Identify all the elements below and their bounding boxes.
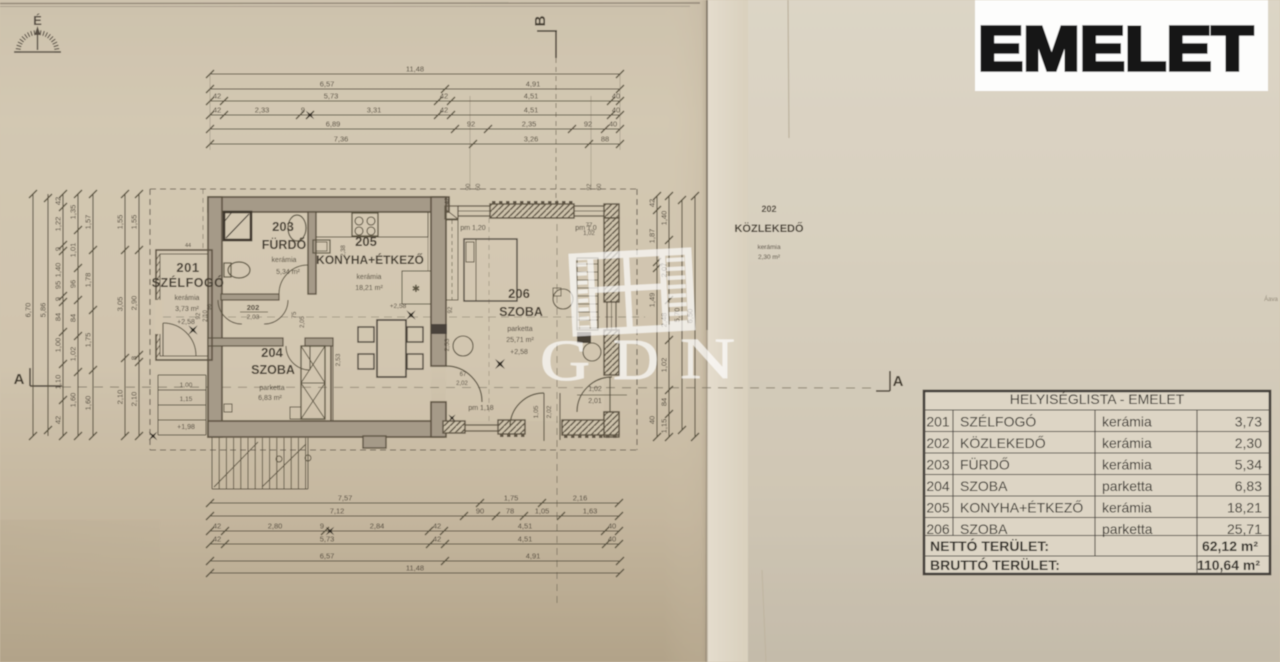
svg-text:2,02: 2,02 <box>546 405 553 418</box>
svg-text:KÖZLEKEDŐ: KÖZLEKEDŐ <box>734 222 804 235</box>
svg-text:202: 202 <box>247 303 260 312</box>
svg-text:KONYHA+ÉTKEZŐ: KONYHA+ÉTKEZŐ <box>960 500 1083 516</box>
svg-text:kerámia: kerámia <box>1102 414 1152 430</box>
svg-text:A: A <box>14 371 25 388</box>
svg-text:62,12 m²: 62,12 m² <box>1202 538 1258 554</box>
svg-text:42: 42 <box>433 535 441 544</box>
svg-text:42: 42 <box>213 106 221 115</box>
svg-text:D: D <box>613 327 659 392</box>
svg-text:205: 205 <box>926 500 950 516</box>
svg-text:N: N <box>680 326 735 391</box>
svg-text:1,55: 1,55 <box>130 215 139 230</box>
svg-text:42: 42 <box>213 535 221 544</box>
svg-text:77: 77 <box>586 223 593 229</box>
svg-text:1,02: 1,02 <box>660 358 669 373</box>
svg-text:parketta: parketta <box>259 385 284 392</box>
svg-text:SZÉLFOGÓ: SZÉLFOGÓ <box>152 275 225 290</box>
svg-text:2,02: 2,02 <box>456 381 468 387</box>
svg-text:84: 84 <box>660 398 669 406</box>
svg-text:HELYISÉGLISTA - EMELET: HELYISÉGLISTA - EMELET <box>1010 391 1185 407</box>
svg-text:2,33: 2,33 <box>255 106 270 115</box>
svg-text:pm 1,20: pm 1,20 <box>460 225 485 232</box>
svg-text:1,00: 1,00 <box>180 382 193 389</box>
svg-text:96: 96 <box>207 304 213 310</box>
svg-text:4,51: 4,51 <box>518 535 533 544</box>
svg-text:3,26: 3,26 <box>524 135 539 144</box>
svg-text:4,91: 4,91 <box>526 552 541 561</box>
svg-text:kerámia: kerámia <box>357 274 382 281</box>
svg-text:SZOBA: SZOBA <box>251 363 295 377</box>
svg-text:6,89: 6,89 <box>326 120 341 129</box>
svg-text:5,34 m²: 5,34 m² <box>276 269 300 276</box>
svg-text:SZOBA: SZOBA <box>960 521 1008 537</box>
svg-text:1,10: 1,10 <box>54 375 63 390</box>
svg-text:kerámia: kerámia <box>1102 435 1152 451</box>
svg-text:2,30 m²: 2,30 m² <box>758 254 781 261</box>
svg-text:1,22: 1,22 <box>54 217 63 232</box>
svg-text:Áava: Áava <box>1264 296 1278 303</box>
svg-text:84: 84 <box>54 313 63 321</box>
svg-text:1,75: 1,75 <box>84 333 93 348</box>
svg-text:18,21: 18,21 <box>1227 500 1262 516</box>
svg-text:201: 201 <box>926 414 950 430</box>
svg-text:25,71: 25,71 <box>1227 521 1262 537</box>
svg-text:25,71 m²: 25,71 m² <box>506 337 534 344</box>
svg-text:6,57: 6,57 <box>320 80 335 89</box>
svg-text:40: 40 <box>648 416 657 424</box>
svg-text:204: 204 <box>926 478 950 494</box>
svg-text:42: 42 <box>54 197 63 205</box>
svg-text:FÜRDŐ: FÜRDŐ <box>262 237 307 252</box>
svg-text:pm 1,18: pm 1,18 <box>468 405 493 412</box>
svg-text:1,02: 1,02 <box>69 347 78 362</box>
svg-text:KONYHA+ÉTKEZŐ: KONYHA+ÉTKEZŐ <box>316 252 424 267</box>
svg-text:96: 96 <box>69 280 78 288</box>
svg-text:7,57: 7,57 <box>338 494 353 503</box>
svg-text:60: 60 <box>476 183 482 190</box>
svg-text:6,57: 6,57 <box>320 552 335 561</box>
svg-text:88: 88 <box>601 135 609 144</box>
svg-text:1,35: 1,35 <box>69 205 78 220</box>
svg-text:60: 60 <box>597 183 603 190</box>
svg-text:kerámia: kerámia <box>175 295 200 302</box>
svg-text:1,63: 1,63 <box>583 507 598 516</box>
svg-text:4,91: 4,91 <box>526 80 541 89</box>
svg-text:3,73 m²: 3,73 m² <box>175 306 199 313</box>
svg-text:2,38: 2,38 <box>341 245 347 257</box>
svg-text:4,51: 4,51 <box>524 106 539 115</box>
svg-text:110,64 m²: 110,64 m² <box>1197 557 1260 573</box>
svg-text:9: 9 <box>54 297 63 301</box>
svg-text:6,70: 6,70 <box>24 303 33 318</box>
svg-text:11,48: 11,48 <box>406 564 424 573</box>
svg-text:5,73: 5,73 <box>324 92 339 101</box>
svg-text:FÜRDŐ: FÜRDŐ <box>960 456 1010 473</box>
svg-text:9: 9 <box>320 522 324 531</box>
svg-text:4,51: 4,51 <box>518 522 533 531</box>
svg-text:G: G <box>540 328 590 393</box>
svg-text:2,30: 2,30 <box>1235 435 1262 451</box>
svg-text:2,35: 2,35 <box>522 120 537 129</box>
svg-text:7,36: 7,36 <box>334 135 349 144</box>
svg-text:40: 40 <box>612 106 620 115</box>
svg-text:92: 92 <box>467 120 475 129</box>
svg-text:42: 42 <box>54 416 63 424</box>
svg-text:1,60: 1,60 <box>69 393 78 408</box>
svg-text:1,15: 1,15 <box>180 396 193 403</box>
svg-text:44: 44 <box>185 243 191 249</box>
svg-text:3,31: 3,31 <box>367 106 382 115</box>
svg-text:1,55: 1,55 <box>116 215 125 230</box>
svg-text:2,80: 2,80 <box>268 522 283 531</box>
svg-text:kerámia: kerámia <box>272 257 297 264</box>
svg-text:5,73: 5,73 <box>320 535 335 544</box>
svg-text:1,05: 1,05 <box>533 405 540 418</box>
svg-text:40: 40 <box>609 120 617 129</box>
svg-text:42: 42 <box>440 106 448 115</box>
svg-text:5,86: 5,86 <box>39 303 48 318</box>
svg-text:EMELET: EMELET <box>978 15 1253 84</box>
svg-text:201: 201 <box>176 260 199 275</box>
svg-text:2,03: 2,03 <box>247 314 260 321</box>
svg-text:✱: ✱ <box>412 284 420 295</box>
svg-text:4,51: 4,51 <box>524 92 539 101</box>
svg-text:B: B <box>532 15 549 26</box>
svg-text:1,02: 1,02 <box>583 231 595 237</box>
svg-text:2,05: 2,05 <box>300 316 306 328</box>
svg-text:202: 202 <box>926 435 950 451</box>
svg-text:206: 206 <box>508 286 530 301</box>
svg-text:2,10: 2,10 <box>130 392 139 407</box>
svg-text:1,57: 1,57 <box>84 215 93 230</box>
svg-text:parketta: parketta <box>507 326 532 333</box>
svg-text:92: 92 <box>587 183 593 190</box>
svg-text:BRUTTÓ TERÜLET:: BRUTTÓ TERÜLET: <box>930 556 1060 573</box>
svg-text:1,60: 1,60 <box>84 396 93 411</box>
svg-text:1,00: 1,00 <box>54 338 63 353</box>
svg-text:205: 205 <box>355 234 377 249</box>
svg-text:42: 42 <box>213 92 221 101</box>
svg-text:42: 42 <box>213 522 221 531</box>
svg-text:3,73: 3,73 <box>1235 414 1262 430</box>
svg-text:1,75: 1,75 <box>504 494 519 503</box>
svg-text:7,12: 7,12 <box>330 507 345 516</box>
svg-text:2,84: 2,84 <box>370 522 385 531</box>
svg-text:1,05: 1,05 <box>535 507 550 516</box>
svg-text:2,10: 2,10 <box>116 390 125 405</box>
svg-text:SZOBA: SZOBA <box>960 478 1008 494</box>
svg-text:67: 67 <box>460 372 467 378</box>
svg-text:kerámia: kerámia <box>757 244 781 251</box>
svg-text:9: 9 <box>54 247 63 251</box>
svg-text:NETTÓ TERÜLET:: NETTÓ TERÜLET: <box>930 537 1049 554</box>
svg-text:2,10: 2,10 <box>203 310 209 322</box>
svg-text:2,16: 2,16 <box>573 494 588 503</box>
svg-text:+2,58: +2,58 <box>177 319 195 326</box>
svg-text:18,21 m²: 18,21 m² <box>355 285 383 292</box>
svg-text:203: 203 <box>926 457 950 473</box>
svg-text:1,15: 1,15 <box>660 419 669 434</box>
svg-text:2,90: 2,90 <box>130 296 139 311</box>
svg-text:1,78: 1,78 <box>84 273 93 288</box>
svg-text:1,87: 1,87 <box>648 229 657 244</box>
svg-text:206: 206 <box>926 521 950 537</box>
svg-text:11,48: 11,48 <box>406 65 424 74</box>
svg-text:kerámia: kerámia <box>1102 457 1152 473</box>
svg-text:90: 90 <box>466 183 472 190</box>
svg-text:parketta: parketta <box>1102 478 1153 494</box>
svg-text:78: 78 <box>506 507 514 516</box>
svg-text:9: 9 <box>301 106 305 115</box>
svg-text:42: 42 <box>440 92 448 101</box>
svg-text:2,53: 2,53 <box>335 353 342 366</box>
svg-text:95: 95 <box>54 281 63 289</box>
svg-text:1,02: 1,02 <box>588 386 602 393</box>
svg-text:90: 90 <box>476 507 484 516</box>
svg-text:1,40: 1,40 <box>660 211 669 226</box>
svg-text:parketta: parketta <box>1102 521 1153 537</box>
svg-text:5,34: 5,34 <box>1235 457 1262 473</box>
svg-text:+2,58: +2,58 <box>390 303 407 310</box>
svg-text:203: 203 <box>272 219 294 234</box>
svg-text:42: 42 <box>445 197 451 204</box>
svg-text:42: 42 <box>648 199 657 207</box>
svg-text:+2,58: +2,58 <box>510 349 528 356</box>
svg-text:204: 204 <box>261 345 283 360</box>
svg-text:40: 40 <box>608 522 616 531</box>
svg-text:+1,98: +1,98 <box>177 424 195 431</box>
svg-text:202: 202 <box>761 204 776 214</box>
svg-text:SZÉLFOGÓ: SZÉLFOGÓ <box>960 414 1036 430</box>
svg-text:1,49: 1,49 <box>648 293 657 308</box>
svg-text:42: 42 <box>433 522 441 531</box>
svg-text:A: A <box>893 373 904 390</box>
svg-text:kerámia: kerámia <box>1102 500 1152 516</box>
svg-text:2,01: 2,01 <box>588 398 602 405</box>
svg-text:É: É <box>33 13 42 28</box>
svg-text:92: 92 <box>196 312 202 319</box>
svg-text:2,53: 2,53 <box>444 338 451 351</box>
svg-text:92: 92 <box>448 306 454 313</box>
svg-text:84: 84 <box>69 314 78 322</box>
svg-text:1,01: 1,01 <box>69 243 78 258</box>
svg-text:8: 8 <box>130 356 139 360</box>
svg-text:40: 40 <box>608 535 616 544</box>
svg-text:6,83: 6,83 <box>1235 478 1262 494</box>
svg-text:KÖZLEKEDŐ: KÖZLEKEDŐ <box>960 434 1046 451</box>
svg-text:3,05: 3,05 <box>116 297 125 312</box>
svg-text:75: 75 <box>292 311 298 318</box>
svg-text:1,40: 1,40 <box>54 263 63 278</box>
svg-text:6,83 m²: 6,83 m² <box>258 395 282 402</box>
svg-text:40: 40 <box>612 92 620 101</box>
svg-text:SZOBA: SZOBA <box>499 305 543 319</box>
